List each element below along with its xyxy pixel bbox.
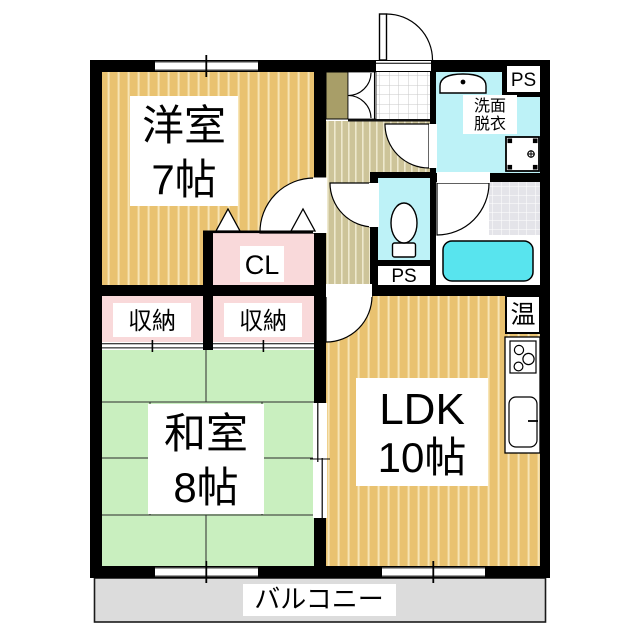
washroom-label-line1: 洗面 (474, 97, 506, 115)
sliding-door-japanese-ldk (310, 403, 330, 518)
opening-toilet-door (369, 183, 379, 227)
storage-left-label: 収納 (128, 308, 176, 335)
washing-machine-pan-icon (506, 137, 539, 171)
bathroom-tile (489, 182, 540, 235)
entry-genkan-tile (376, 72, 430, 119)
floor-plan-canvas: 洋室 7帖 CL 収納 収納 和室 8帖 LDK 10帖 洗面 脱衣 PS PS… (0, 0, 640, 640)
bathtub-icon (443, 241, 533, 281)
opening-washroom-door (429, 124, 437, 168)
opening-western-door (313, 178, 327, 234)
kitchen-sink-icon (509, 397, 537, 447)
room-western-name: 洋室 (142, 102, 226, 149)
balcony-label: バルコニー (254, 584, 383, 614)
room-ldk-name: LDK (379, 385, 465, 434)
washroom-label-line2: 脱衣 (474, 115, 506, 133)
toilet-icon (391, 203, 417, 257)
pipe-space-middle-label: PS (391, 266, 416, 287)
vanity-sink-icon (440, 74, 486, 93)
closet-cl-label: CL (245, 250, 280, 280)
kitchen-unit (505, 337, 540, 453)
room-ldk-size: 10帖 (378, 434, 467, 481)
room-western-size: 7帖 (151, 156, 216, 203)
room-japanese-name: 和室 (164, 410, 248, 457)
entrance-opening (376, 61, 431, 71)
shoe-cabinet-doors (348, 72, 376, 119)
pipe-space-top-label: PS (511, 70, 536, 91)
room-japanese-size: 8帖 (173, 464, 238, 511)
opening-bathroom-door (437, 172, 490, 183)
storage-right-label: 収納 (239, 308, 287, 335)
water-heater-label: 温 (510, 301, 535, 329)
shoe-cabinet (326, 72, 348, 119)
opening-ldk-door (326, 284, 372, 297)
floor-plan-page: 洋室 7帖 CL 収納 収納 和室 8帖 LDK 10帖 洗面 脱衣 PS PS… (0, 0, 640, 640)
